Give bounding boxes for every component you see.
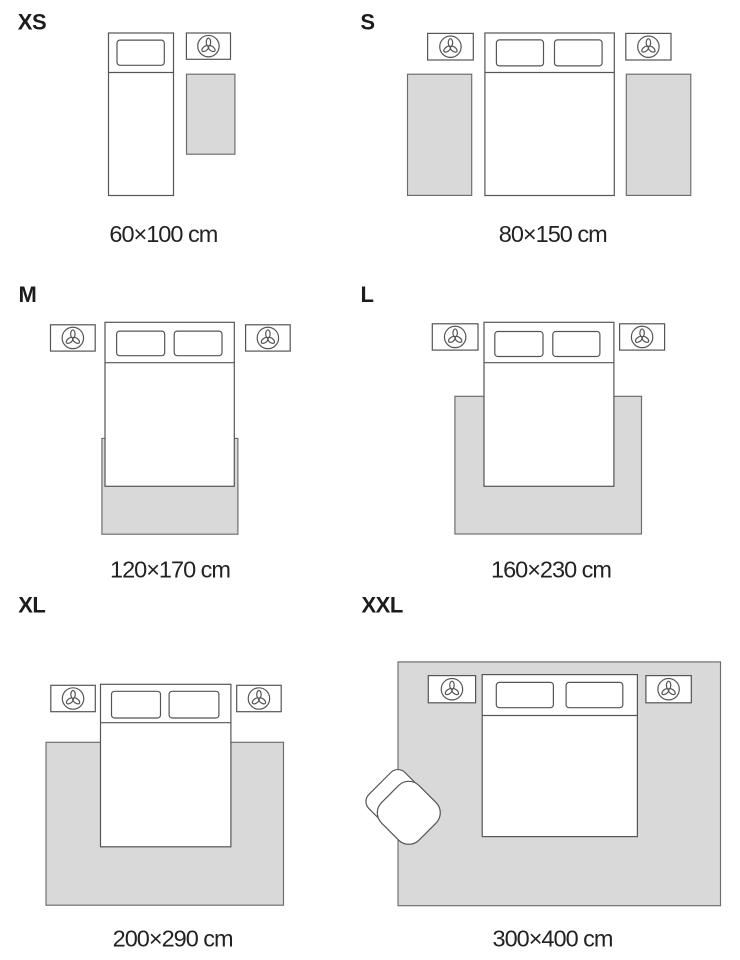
svg-text:160×230 cm: 160×230 cm [491, 557, 611, 583]
svg-text:XL: XL [18, 593, 45, 618]
svg-text:120×170 cm: 120×170 cm [110, 557, 230, 583]
svg-text:80×150 cm: 80×150 cm [499, 221, 607, 247]
svg-text:M: M [19, 282, 37, 307]
svg-text:200×290 cm: 200×290 cm [113, 926, 233, 952]
svg-text:S: S [360, 9, 374, 34]
svg-text:XS: XS [18, 9, 46, 34]
svg-text:60×100 cm: 60×100 cm [109, 221, 217, 247]
svg-text:300×400 cm: 300×400 cm [493, 926, 613, 952]
svg-text:XXL: XXL [362, 593, 403, 618]
svg-text:L: L [361, 282, 374, 307]
